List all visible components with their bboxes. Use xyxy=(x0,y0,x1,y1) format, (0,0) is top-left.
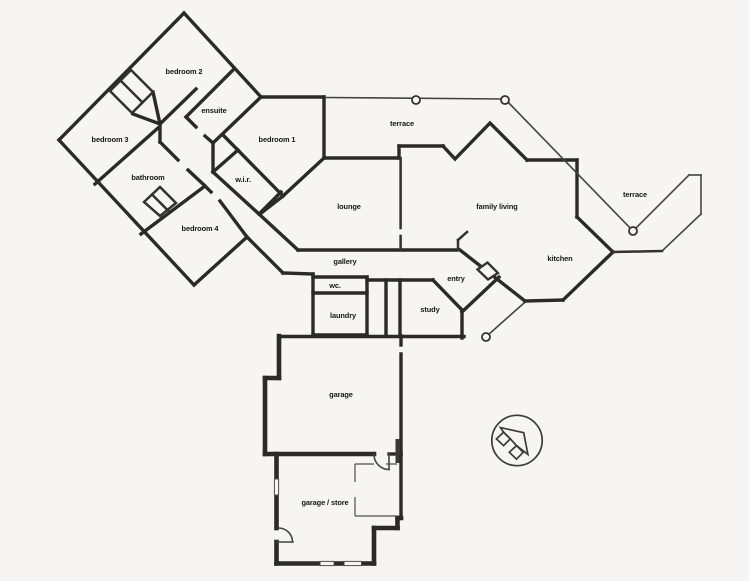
svg-text:w.i.r.: w.i.r. xyxy=(234,175,251,184)
svg-text:ensuite: ensuite xyxy=(201,106,226,115)
svg-text:laundry: laundry xyxy=(330,311,357,320)
svg-text:gallery: gallery xyxy=(333,257,357,266)
svg-text:entry: entry xyxy=(447,274,466,283)
svg-text:family living: family living xyxy=(476,202,518,211)
svg-text:bedroom 3: bedroom 3 xyxy=(92,135,129,144)
svg-text:garage: garage xyxy=(329,390,353,399)
svg-text:wc.: wc. xyxy=(328,281,341,290)
svg-text:bedroom 4: bedroom 4 xyxy=(182,224,220,233)
svg-text:garage / store: garage / store xyxy=(301,498,348,507)
svg-text:kitchen: kitchen xyxy=(547,254,573,263)
svg-text:terrace: terrace xyxy=(623,190,647,199)
svg-text:bedroom 2: bedroom 2 xyxy=(166,67,203,76)
svg-text:terrace: terrace xyxy=(390,119,414,128)
svg-text:bedroom 1: bedroom 1 xyxy=(259,135,296,144)
svg-text:lounge: lounge xyxy=(337,202,361,211)
svg-text:bathroom: bathroom xyxy=(131,173,165,182)
svg-text:study: study xyxy=(420,305,440,314)
